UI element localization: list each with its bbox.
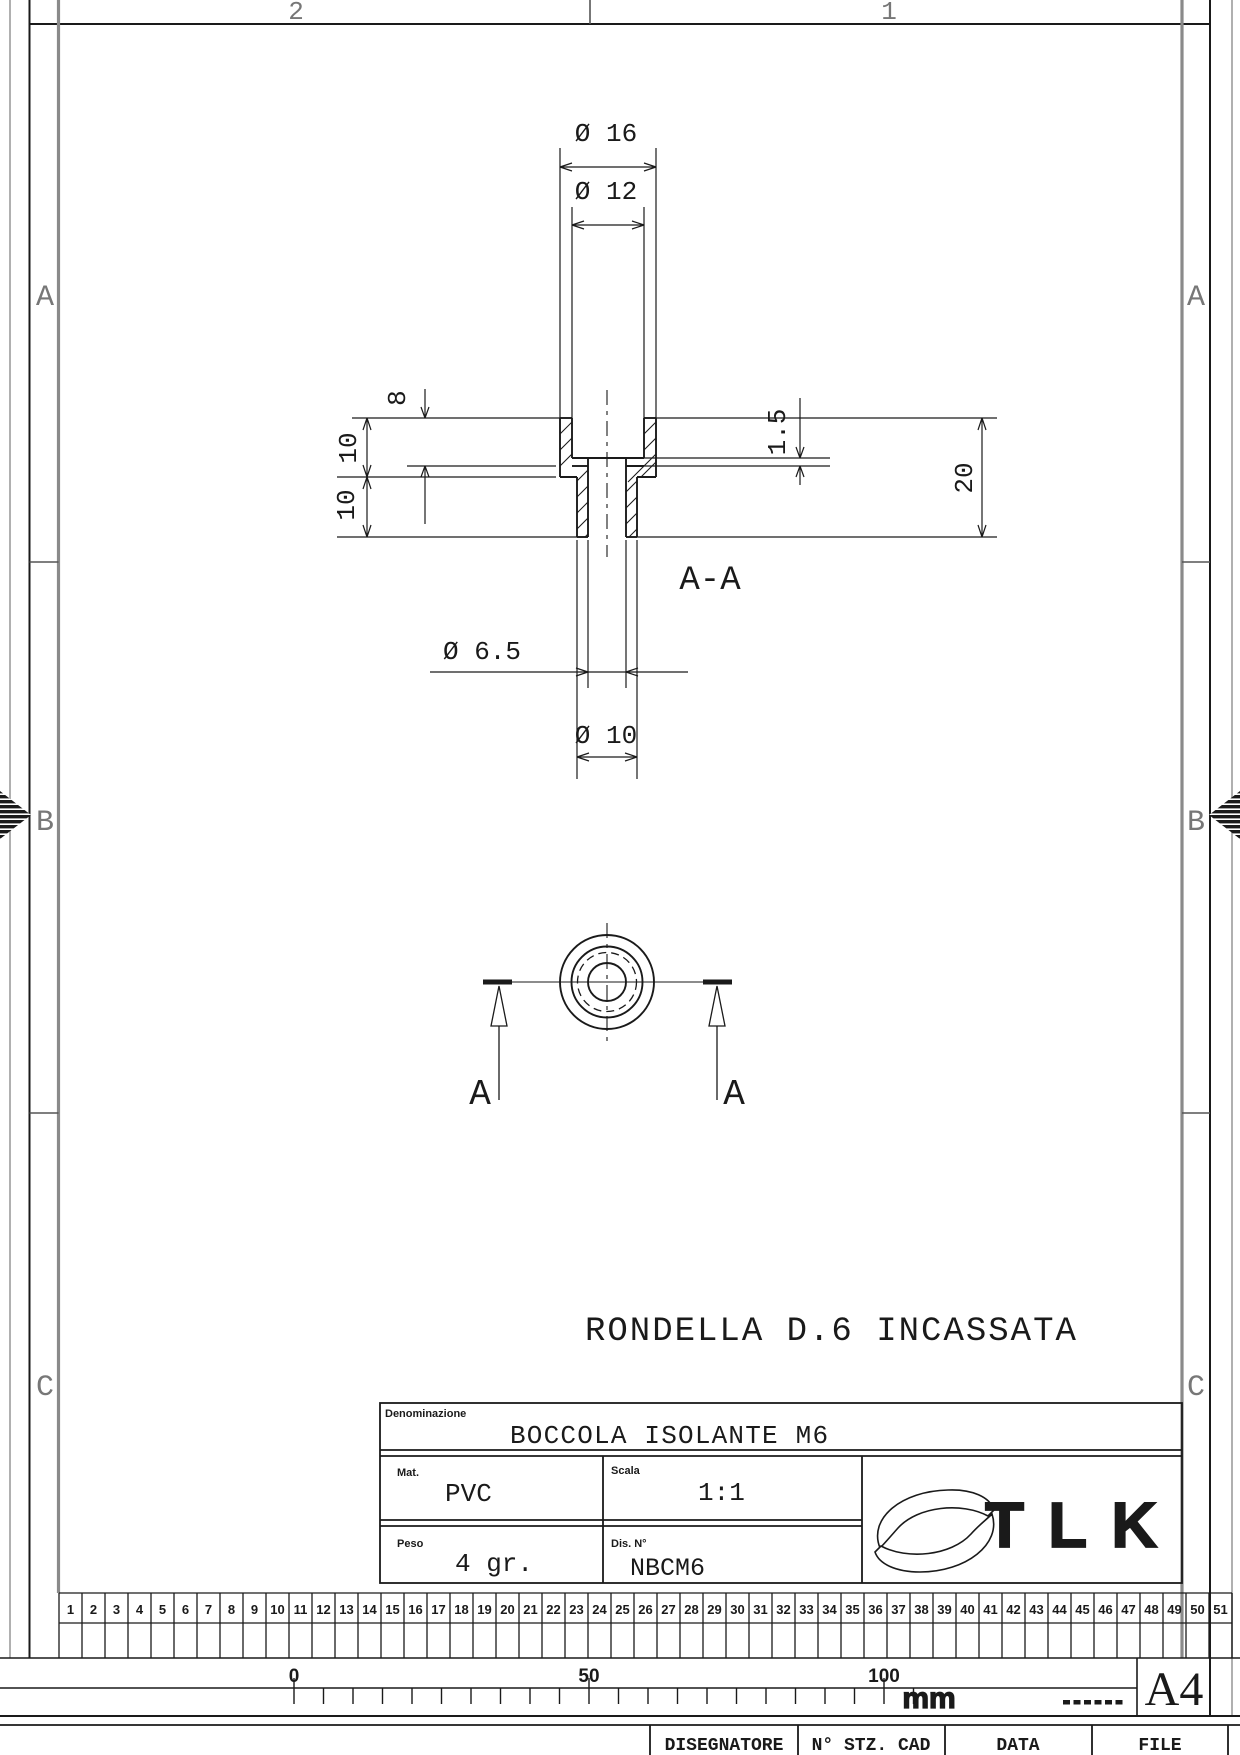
scala-label: Scala <box>611 1465 641 1477</box>
dim-washer-thickness: 1.5 <box>763 409 793 456</box>
strip-number: 9 <box>251 1602 258 1617</box>
strip-number: 40 <box>960 1602 974 1617</box>
strip-number: 10 <box>270 1602 284 1617</box>
cut-arrow-label-left: A <box>469 1074 491 1115</box>
fold-mark-right <box>1209 791 1240 839</box>
dim-outer-flange-dia: Ø 16 <box>575 119 637 149</box>
logo-text: TLK <box>985 1489 1181 1561</box>
zone-col-1: 1 <box>881 0 897 27</box>
dim-hole-dia: Ø 6.5 <box>443 637 521 667</box>
dots <box>1063 1700 1123 1705</box>
strip-number: 22 <box>546 1602 560 1617</box>
strip-number: 15 <box>385 1602 399 1617</box>
company-logo: TLK <box>875 1489 1181 1572</box>
strip-number: 30 <box>730 1602 744 1617</box>
ruler-label-100: 100 <box>868 1666 900 1687</box>
strip-number: 1 <box>67 1602 74 1617</box>
dis-value: NBCM6 <box>630 1554 705 1583</box>
strip-number: 43 <box>1029 1602 1043 1617</box>
strip-number: 7 <box>205 1602 212 1617</box>
strip-number: 39 <box>937 1602 951 1617</box>
peso-label: Peso <box>397 1538 424 1550</box>
top-view: A A <box>469 923 745 1115</box>
fold-mark-left <box>0 791 31 839</box>
strip-number: 48 <box>1144 1602 1158 1617</box>
footer-strip: DISEGNATORE N° STZ. CAD DATA FILE <box>0 1725 1240 1755</box>
strip-number: 5 <box>159 1602 166 1617</box>
ruler-unit: mm <box>902 1682 955 1715</box>
strip-number: 17 <box>431 1602 445 1617</box>
strip-number: 26 <box>638 1602 652 1617</box>
strip-number: 38 <box>914 1602 928 1617</box>
strip-number: 6 <box>182 1602 189 1617</box>
section-view: Ø 16 Ø 12 8 10 10 1.5 20 Ø 6.5 Ø 10 A-A <box>332 119 997 779</box>
section-hatching <box>544 394 684 570</box>
strip-number: 44 <box>1052 1602 1067 1617</box>
zone-col-2: 2 <box>288 0 304 27</box>
fold-marks <box>0 791 1240 839</box>
strip-number: 8 <box>228 1602 235 1617</box>
zone-labels: 2 1 A B C A B C <box>36 0 1205 1405</box>
cut-arrow-label-right: A <box>723 1074 745 1115</box>
strip-number: 51 <box>1213 1602 1227 1617</box>
ruler-label-0: 0 <box>289 1666 300 1687</box>
dim-recess-depth: 8 <box>383 390 413 406</box>
strip-number: 37 <box>891 1602 905 1617</box>
sheet-frame <box>10 0 1232 1716</box>
drawing-note: RONDELLA D.6 INCASSATA <box>585 1313 1078 1351</box>
zone-row-a-left: A <box>36 281 54 315</box>
footer-disegnatore: DISEGNATORE <box>665 1736 784 1755</box>
strip-number: 21 <box>523 1602 537 1617</box>
strip-number: 50 <box>1190 1602 1204 1617</box>
strip-number: 20 <box>500 1602 514 1617</box>
strip-number: 47 <box>1121 1602 1135 1617</box>
strip-number: 33 <box>799 1602 813 1617</box>
zone-row-c-right: C <box>1187 1371 1205 1405</box>
strip-number: 42 <box>1006 1602 1020 1617</box>
strip-number: 27 <box>661 1602 675 1617</box>
mat-value: PVC <box>445 1479 492 1509</box>
strip-number: 16 <box>408 1602 422 1617</box>
dis-label: Dis. N° <box>611 1538 647 1550</box>
strip-number: 14 <box>362 1602 377 1617</box>
zone-row-b-right: B <box>1187 806 1205 840</box>
drawing-sheet: 2 1 A B C A B C <box>0 0 1240 1755</box>
strip-number: 3 <box>113 1602 120 1617</box>
strip-number: 18 <box>454 1602 468 1617</box>
denominazione-label: Denominazione <box>385 1408 466 1420</box>
zone-row-c-left: C <box>36 1371 54 1405</box>
strip-number: 2 <box>90 1602 97 1617</box>
footer-n-stz-cad: N° STZ. CAD <box>812 1736 931 1755</box>
strip-number: 31 <box>753 1602 767 1617</box>
peso-value: 4 gr. <box>455 1549 533 1579</box>
dim-flange-height: 10 <box>334 432 364 463</box>
strip-number: 36 <box>868 1602 882 1617</box>
strip-number: 23 <box>569 1602 583 1617</box>
strip-number: 45 <box>1075 1602 1089 1617</box>
strip-number: 34 <box>822 1602 837 1617</box>
strip-number: 49 <box>1167 1602 1181 1617</box>
strip-number: 13 <box>339 1602 353 1617</box>
strip-number: 35 <box>845 1602 859 1617</box>
number-strip: 1234567891011121314151617181920212223242… <box>59 1593 1232 1658</box>
strip-number: 46 <box>1098 1602 1112 1617</box>
section-label: A-A <box>679 562 741 600</box>
strip-number: 12 <box>316 1602 330 1617</box>
dim-stem-dia: Ø 10 <box>575 721 637 751</box>
dim-total-height: 20 <box>950 462 980 493</box>
scala-value: 1:1 <box>698 1478 745 1508</box>
footer-data: DATA <box>996 1736 1039 1755</box>
denominazione-value: BOCCOLA ISOLANTE M6 <box>510 1421 829 1451</box>
strip-number: 11 <box>294 1602 308 1617</box>
dim-stem-height: 10 <box>332 489 362 520</box>
footer-file: FILE <box>1138 1736 1181 1755</box>
zone-row-a-right: A <box>1187 281 1205 315</box>
title-block: Denominazione Mat. Scala Peso Dis. N° BO… <box>380 1403 1182 1583</box>
strip-number: 24 <box>592 1602 607 1617</box>
strip-number: 25 <box>615 1602 629 1617</box>
zone-row-b-left: B <box>36 806 54 840</box>
strip-number: 41 <box>983 1602 997 1617</box>
strip-number: 28 <box>684 1602 698 1617</box>
strip-number: 29 <box>707 1602 721 1617</box>
ruler-label-50: 50 <box>578 1666 599 1687</box>
sheet-format: A4 <box>1145 1663 1204 1716</box>
mat-label: Mat. <box>397 1467 419 1479</box>
dim-recess-dia: Ø 12 <box>575 177 637 207</box>
strip-number: 32 <box>776 1602 790 1617</box>
strip-number: 4 <box>136 1602 144 1617</box>
ruler-strip: 0 50 100 mm A4 <box>0 1658 1240 1716</box>
strip-number: 19 <box>477 1602 491 1617</box>
